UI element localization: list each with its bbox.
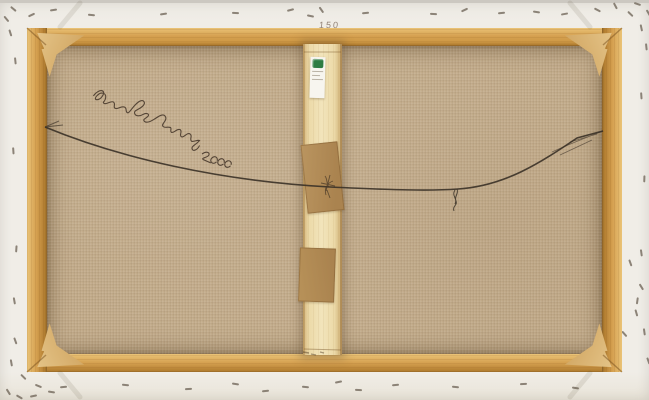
wedge-key	[31, 31, 93, 79]
size-notation: 150	[319, 20, 341, 30]
staple	[636, 297, 639, 304]
sticker-text-line	[312, 71, 323, 72]
staple	[12, 147, 14, 154]
staple	[561, 12, 568, 15]
wedge-key	[556, 31, 618, 79]
staple	[520, 383, 527, 385]
staple	[15, 245, 17, 252]
staple	[640, 249, 643, 256]
staple	[629, 259, 633, 266]
staple	[16, 394, 23, 399]
inventory-sticker	[309, 57, 325, 98]
stretcher-bar-bottom	[27, 354, 622, 372]
staple	[302, 386, 309, 388]
staple	[319, 6, 324, 13]
corner-keys-bottom-left	[31, 321, 93, 369]
canvas-back-photo: 150	[0, 0, 649, 400]
staple	[640, 24, 643, 31]
staple	[613, 2, 618, 9]
staple	[335, 380, 342, 383]
staple	[645, 43, 647, 50]
corner-keys-top-left	[31, 31, 93, 79]
staple	[533, 11, 540, 14]
staple	[262, 390, 269, 392]
staple	[9, 29, 13, 36]
staple	[461, 8, 468, 12]
wedge-key	[556, 321, 618, 369]
corner-keys-bottom-right	[556, 321, 618, 369]
staple	[6, 388, 11, 395]
staple	[627, 11, 633, 17]
staple	[622, 331, 628, 337]
corner-keys-top-right	[556, 31, 618, 79]
staple	[160, 13, 167, 16]
staple	[572, 387, 579, 390]
kraft-tape-patch-upper	[300, 141, 344, 213]
staple	[35, 384, 42, 388]
staple	[30, 394, 37, 397]
staple	[60, 386, 67, 388]
staple	[13, 297, 16, 304]
staple	[594, 7, 601, 12]
staple	[28, 13, 35, 17]
staple	[643, 328, 646, 335]
staple	[635, 309, 639, 316]
staple	[392, 384, 399, 386]
staple	[232, 383, 239, 386]
staple	[88, 14, 95, 16]
staple	[20, 374, 26, 380]
staple	[4, 16, 10, 22]
sticker-text-line	[312, 75, 320, 76]
staple	[232, 12, 239, 14]
staple	[10, 359, 13, 366]
staple	[639, 283, 644, 290]
staple	[48, 391, 55, 394]
wedge-key	[31, 321, 93, 369]
staple	[452, 386, 459, 388]
staple	[430, 13, 437, 15]
staple	[644, 175, 646, 182]
green-logo-icon	[312, 59, 323, 68]
staple	[362, 12, 369, 14]
staple	[122, 384, 129, 386]
staple	[498, 12, 505, 14]
staple	[640, 92, 642, 99]
staple	[14, 337, 18, 344]
staple	[355, 389, 362, 391]
staple	[50, 9, 57, 12]
staple	[10, 6, 16, 12]
staple	[185, 388, 192, 390]
staple	[307, 14, 314, 17]
sticker-text-line	[312, 79, 323, 80]
staple	[634, 2, 641, 6]
staple	[14, 57, 16, 64]
staple	[287, 8, 294, 11]
kraft-tape-patch-lower	[298, 247, 336, 302]
